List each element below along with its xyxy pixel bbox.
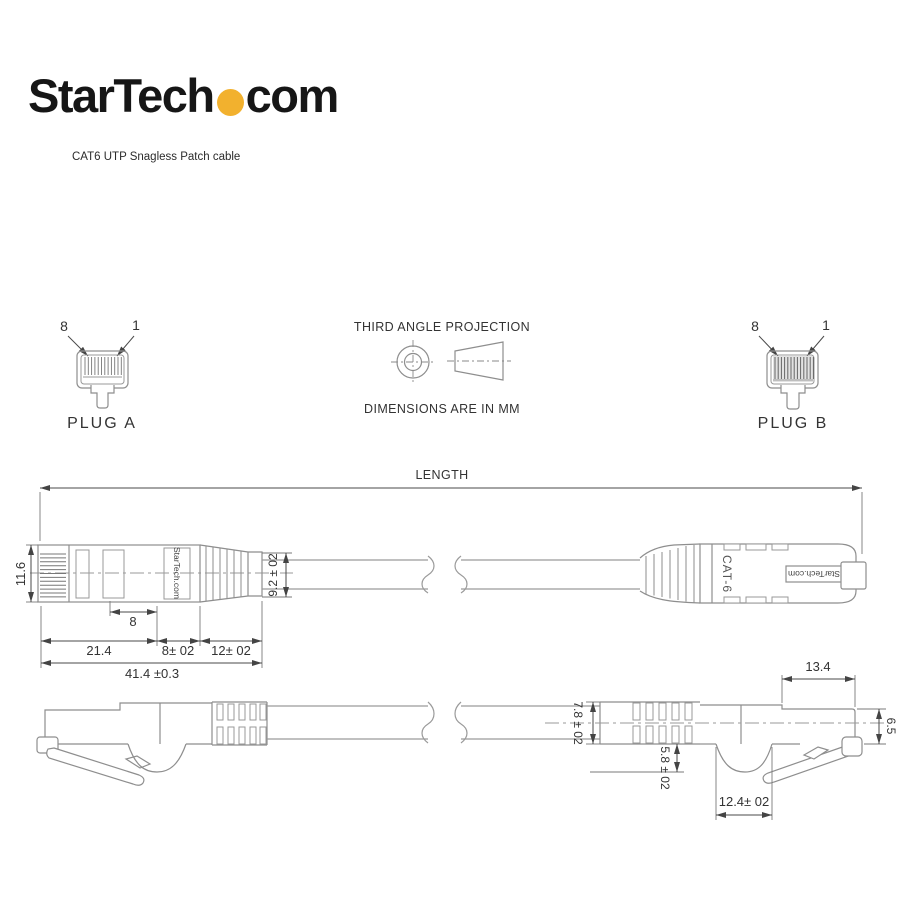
plug-a-caption: PLUG A bbox=[67, 415, 137, 432]
cable-profile-view: 7.8 ± 02 13.4 6.5 5.8 ± 02 12.4± 02 bbox=[37, 659, 898, 820]
dim-latch-8: 8 bbox=[129, 614, 136, 629]
projection-note: THIRD ANGLE PROJECTION DIMENSIONS ARE IN… bbox=[354, 320, 530, 416]
plug-a-pin1-label: 1 bbox=[132, 317, 140, 333]
dim-latch-depth-5-8: 5.8 ± 02 bbox=[658, 746, 672, 790]
dim-seg-21-4: 21.4 bbox=[86, 643, 111, 658]
dim-tip-height-6-5: 6.5 bbox=[884, 718, 898, 735]
plug-a-boot-ribs bbox=[206, 546, 241, 601]
dim-top-length-13-4: 13.4 bbox=[805, 659, 830, 674]
dim-boot-height-9-2: 9.2 ± 02 bbox=[266, 553, 280, 597]
plug-b-front-view: 8 1 PLUG B bbox=[751, 317, 830, 432]
plug-b-caption: PLUG B bbox=[758, 415, 829, 432]
plug-b-profile bbox=[600, 702, 862, 783]
plug-a-pins bbox=[85, 357, 121, 375]
cable-side-view: StarTech.com bbox=[13, 544, 866, 681]
plug-a-profile bbox=[37, 702, 267, 785]
drawing-sheet: StarTech com CAT6 UTP Snagless Patch cab… bbox=[0, 0, 900, 900]
plug-b-pin8-label: 8 bbox=[751, 318, 759, 334]
projection-title: THIRD ANGLE PROJECTION bbox=[354, 320, 530, 334]
length-label: LENGTH bbox=[415, 468, 468, 482]
plug-a-side-view: StarTech.com bbox=[38, 545, 262, 602]
plug-a-brand-marking: StarTech.com bbox=[172, 547, 182, 599]
plug-a-front-view: 8 1 PLUG A bbox=[60, 317, 140, 432]
plug-a-contacts bbox=[40, 554, 66, 597]
plug-b-pin1-label: 1 bbox=[822, 317, 830, 333]
dim-boot-height-7-8: 7.8 ± 02 bbox=[571, 701, 585, 745]
plug-b-cat6-marking: CAT-6 bbox=[720, 555, 734, 593]
dim-latch-width-12-4: 12.4± 02 bbox=[719, 794, 770, 809]
plug-a-pin8-label: 8 bbox=[60, 318, 68, 334]
technical-drawing: 8 1 PLUG A THIRD ANGLE PROJECTION DI bbox=[0, 0, 900, 900]
plug-a-boot-slots bbox=[217, 704, 266, 744]
cable-top bbox=[262, 556, 640, 593]
dim-height-11-6: 11.6 bbox=[13, 562, 28, 586]
projection-symbol-icon bbox=[391, 340, 511, 384]
plug-b-boot-ribs bbox=[646, 545, 694, 603]
plug-b-label-sticker: StarTech.com bbox=[788, 569, 840, 579]
length-dimension: LENGTH bbox=[40, 468, 862, 554]
dim-seg-12: 12± 02 bbox=[211, 643, 251, 658]
dim-seg-8: 8± 02 bbox=[162, 643, 194, 658]
plug-b-side-view: CAT-6 StarTech.com bbox=[640, 544, 866, 603]
units-note: DIMENSIONS ARE IN MM bbox=[364, 402, 520, 416]
cable-bottom bbox=[267, 702, 600, 743]
dim-total-41-4: 41.4 ±0.3 bbox=[125, 666, 179, 681]
